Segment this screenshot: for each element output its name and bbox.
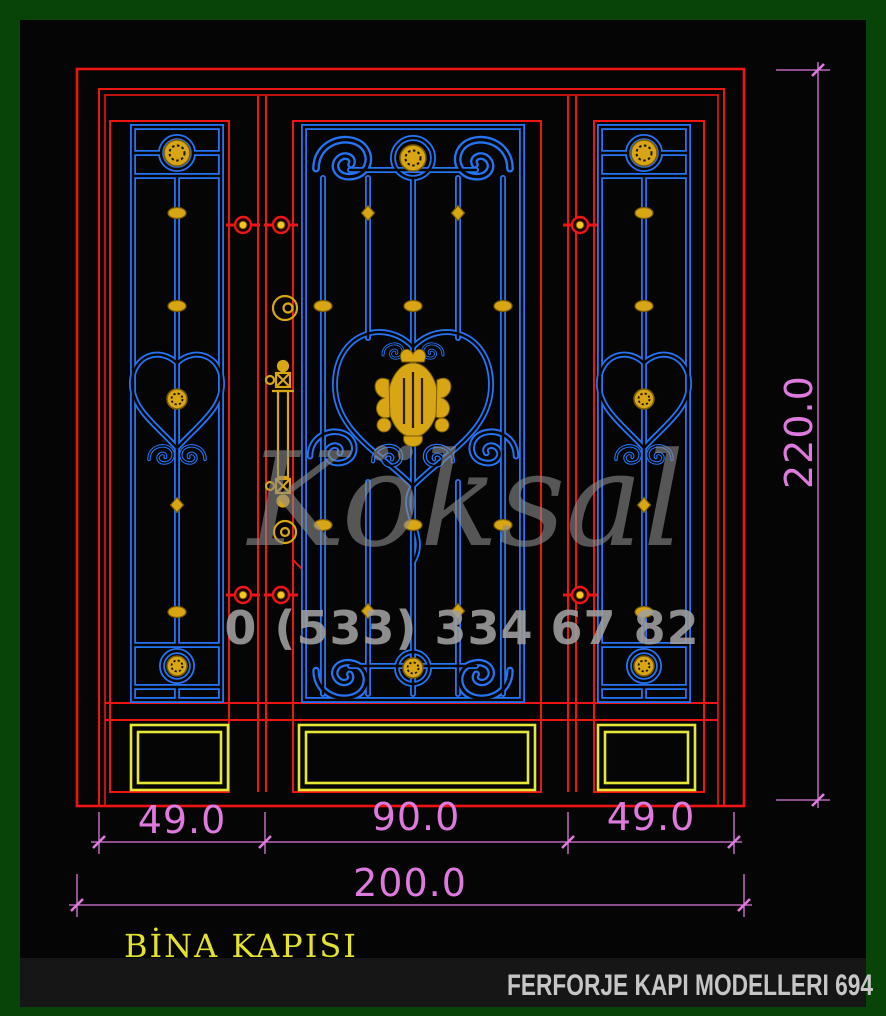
dim-center-panel-width: 90.0	[372, 795, 461, 839]
cad-viewport: Köksal 0 (533) 334 67 82 49.0 90.0 49.0 …	[0, 0, 886, 1016]
watermark-phone: 0 (533) 334 67 82	[224, 601, 699, 655]
cad-drawing: Köksal 0 (533) 334 67 82 49.0 90.0 49.0 …	[0, 0, 886, 1016]
footer-label: FERFORJE KAPI MODELLERI 694	[507, 969, 873, 1002]
dim-left-panel-width: 49.0	[138, 798, 227, 842]
watermark: Köksal 0 (533) 334 67 82	[224, 424, 699, 655]
footer-bar: FERFORJE KAPI MODELLERI 694	[20, 958, 873, 1007]
watermark-brand: Köksal	[246, 424, 684, 576]
dim-total-width: 200.0	[353, 861, 467, 905]
dim-total-height: 220.0	[777, 375, 821, 489]
dim-right-panel-width: 49.0	[607, 795, 696, 839]
